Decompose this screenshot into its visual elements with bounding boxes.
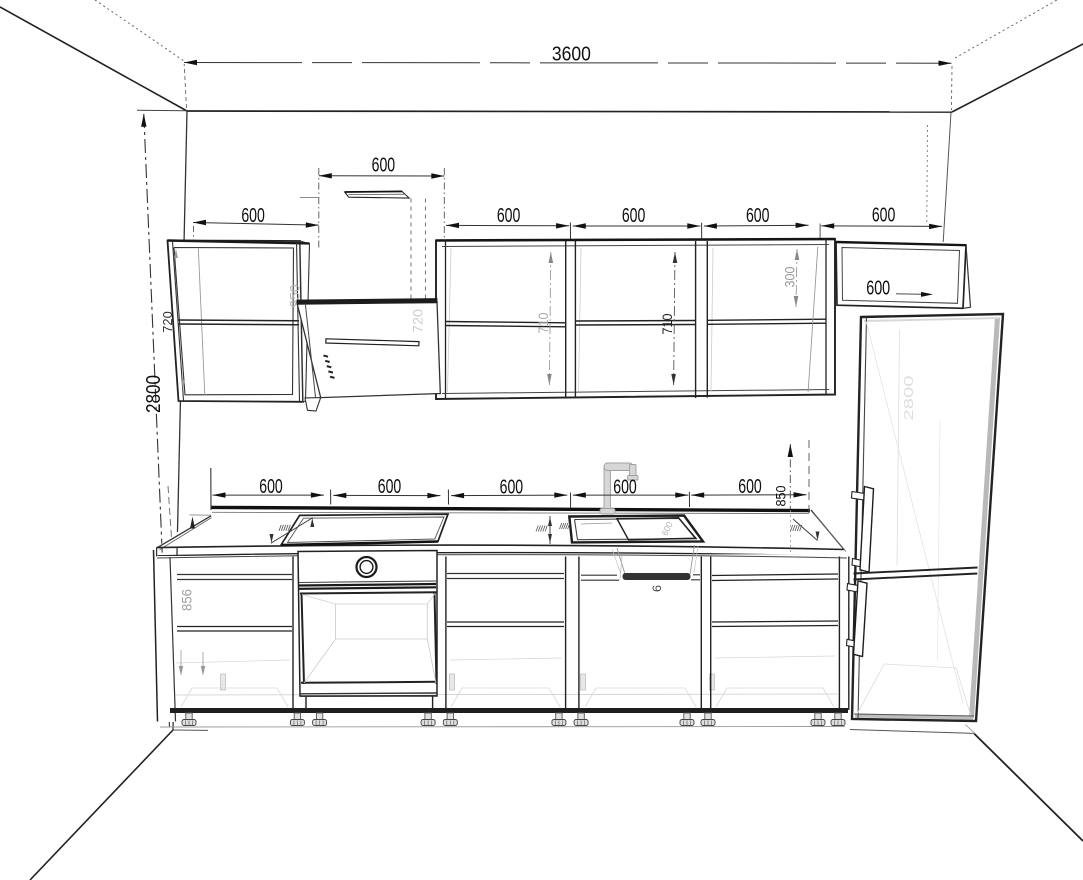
svg-text:600: 600 [500, 475, 524, 498]
svg-text:856: 856 [179, 589, 195, 611]
svg-text:600: 600 [259, 475, 283, 498]
svg-text:3600: 3600 [552, 43, 591, 66]
svg-text:710: 710 [659, 313, 675, 334]
svg-text:720: 720 [410, 309, 426, 333]
svg-text:850: 850 [773, 485, 789, 506]
svg-text:600: 600 [872, 204, 896, 227]
svg-text:600: 600 [241, 204, 265, 227]
svg-text:300: 300 [782, 266, 798, 287]
svg-text:600: 600 [746, 204, 770, 227]
svg-text:600: 600 [866, 277, 890, 300]
svg-text:720: 720 [160, 311, 175, 333]
svg-text:600: 600 [622, 204, 646, 227]
svg-text:600: 600 [497, 204, 521, 227]
svg-text:600: 600 [738, 475, 762, 498]
svg-text:600: 600 [613, 475, 637, 498]
svg-text:600: 600 [378, 475, 402, 498]
svg-text:710: 710 [535, 312, 551, 333]
svg-text:2800: 2800 [901, 376, 916, 421]
svg-text:6: 6 [650, 585, 664, 592]
svg-text:2800: 2800 [142, 375, 165, 413]
svg-text:600: 600 [372, 154, 396, 177]
